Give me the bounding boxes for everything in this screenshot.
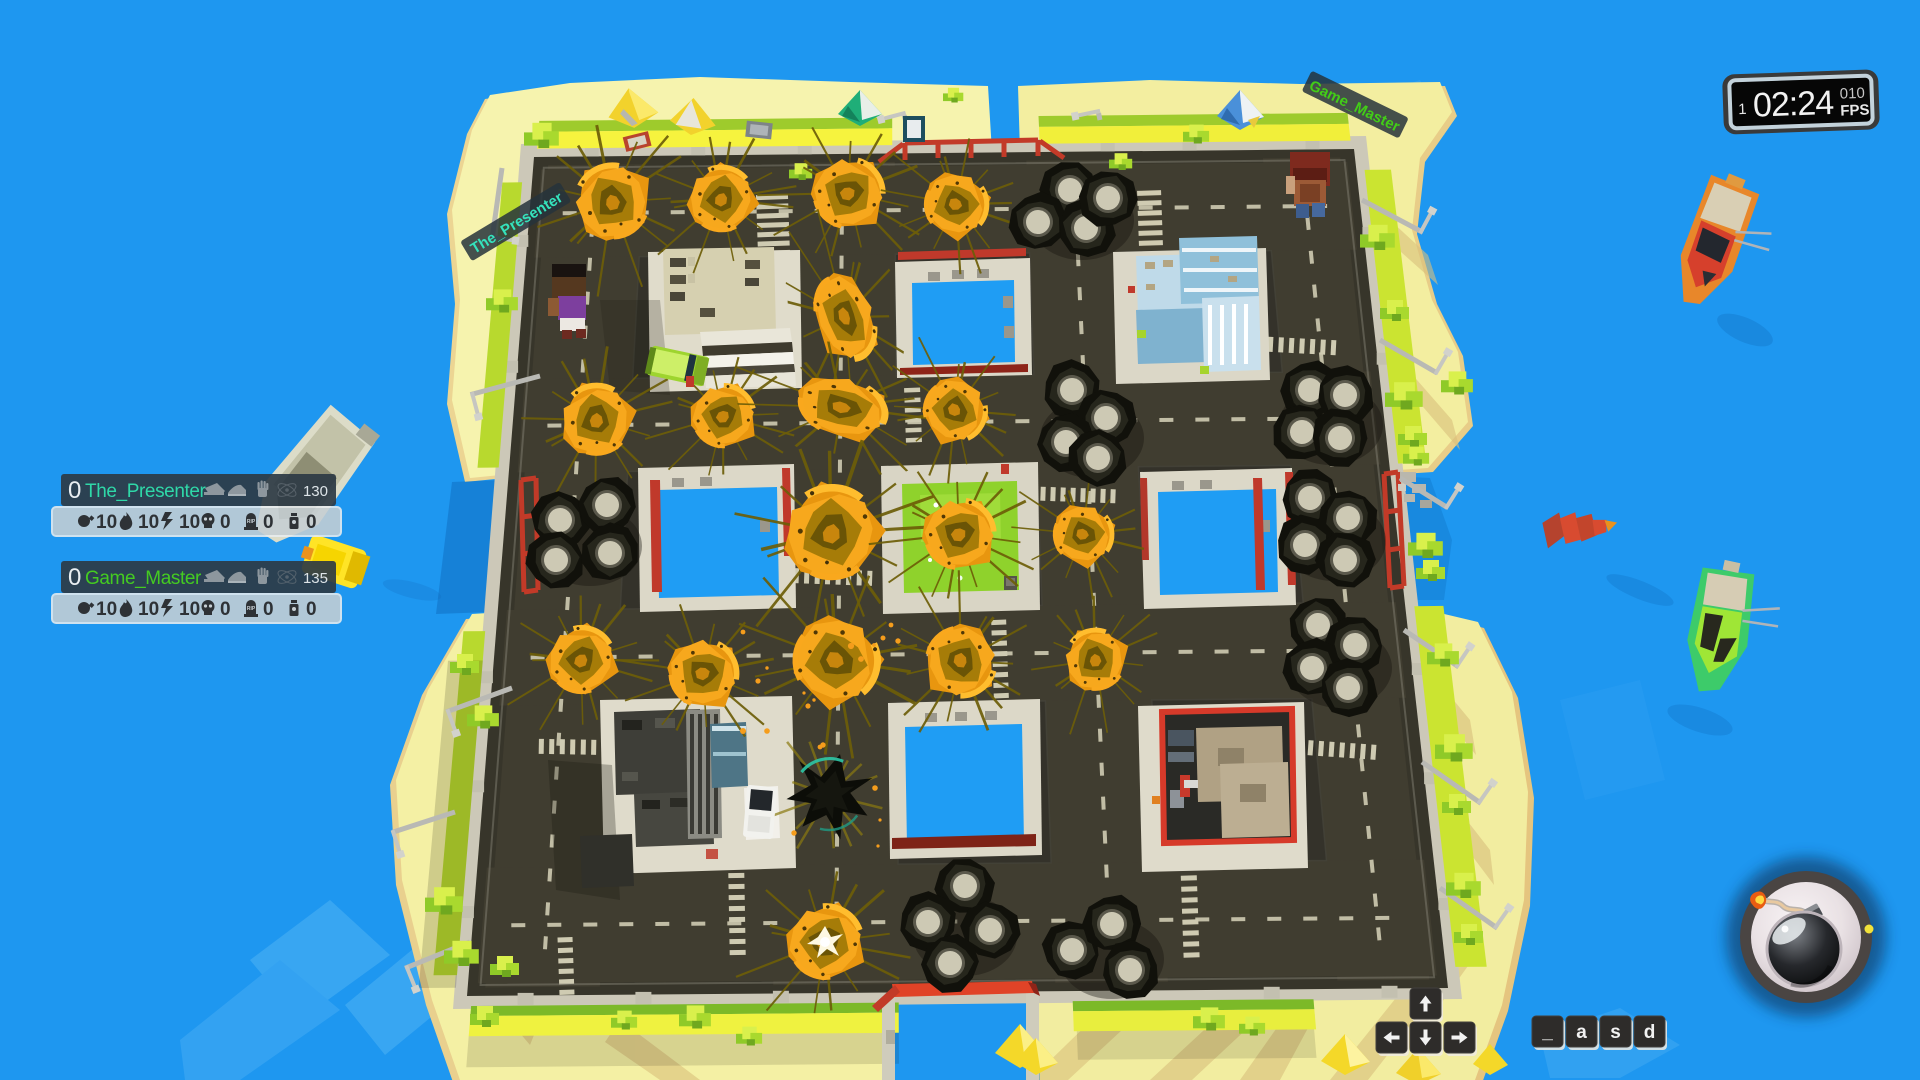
svg-text:1: 1 [1738,101,1747,118]
svg-text:a: a [1576,1022,1587,1043]
svg-text:0: 0 [220,512,231,533]
svg-text:0: 0 [68,564,81,591]
svg-text:0: 0 [263,512,274,533]
svg-text:10: 10 [179,599,200,620]
svg-text:Game_Master: Game_Master [85,568,202,589]
svg-text:0: 0 [306,599,317,620]
svg-text:10: 10 [138,599,159,620]
svg-text:FPS: FPS [1840,102,1870,120]
svg-text:10: 10 [179,512,200,533]
svg-text:0: 0 [306,512,317,533]
svg-text:10: 10 [96,512,117,533]
svg-text:130: 130 [303,483,328,500]
svg-text:0: 0 [220,599,231,620]
svg-text:10: 10 [96,599,117,620]
svg-text:d: d [1644,1022,1656,1043]
svg-text:10: 10 [138,512,159,533]
svg-text:s: s [1610,1022,1621,1043]
svg-text:02:24: 02:24 [1752,84,1833,125]
svg-text:_: _ [1541,1022,1553,1043]
svg-text:The_Presenter: The_Presenter [85,481,207,502]
svg-text:RIP: RIP [247,519,256,525]
svg-text:010: 010 [1839,85,1865,103]
svg-text:135: 135 [303,570,328,587]
svg-text:0: 0 [68,477,81,504]
svg-text:RIP: RIP [247,606,256,612]
svg-text:0: 0 [263,599,274,620]
